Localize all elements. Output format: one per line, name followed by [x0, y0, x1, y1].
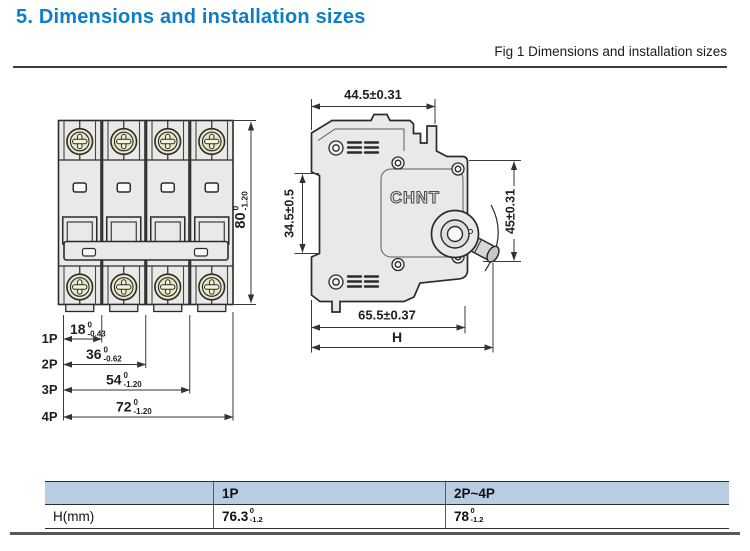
tolerance-stack: 0-1.2 — [471, 507, 484, 524]
table-header-empty — [45, 482, 213, 504]
dim-right-height: 45±0.31 — [504, 189, 518, 234]
svg-text:36: 36 — [86, 346, 102, 362]
dimension-table: 1P 2P~4P H(mm) 76.3 0-1.2 78 0-1.2 — [45, 481, 729, 529]
svg-text:72: 72 — [116, 399, 132, 415]
pole-label-3p: 3P — [42, 382, 58, 397]
dim-2p: 36 0 -0.62 — [86, 346, 122, 364]
side-view: CHNT — [312, 115, 502, 313]
table-header-1p: 1P — [213, 482, 445, 504]
front-view — [59, 121, 234, 312]
svg-text:-0.43: -0.43 — [88, 330, 107, 339]
svg-text:-1.20: -1.20 — [240, 191, 250, 211]
tolerance-stack: 0-1.2 — [250, 507, 263, 524]
pole-label-1p: 1P — [42, 331, 58, 346]
table-header-row: 1P 2P~4P — [45, 482, 729, 505]
dim-top-width: 44.5±0.31 — [344, 87, 402, 102]
dim-din-height: 34.5±0.5 — [283, 189, 297, 238]
dim-3p: 54 0 -1.20 — [106, 371, 142, 389]
table-header-2p-4p: 2P~4P — [445, 482, 729, 504]
svg-text:0: 0 — [134, 398, 139, 407]
table-row-label: H(mm) — [45, 505, 213, 528]
svg-text:-0.62: -0.62 — [104, 355, 123, 364]
pole-label-4p: 4P — [42, 409, 58, 424]
svg-text:-1.20: -1.20 — [134, 407, 153, 416]
svg-text:-1.20: -1.20 — [124, 380, 143, 389]
svg-text:0: 0 — [104, 346, 109, 355]
svg-text:0: 0 — [88, 321, 93, 330]
page-bottom-rule — [10, 532, 740, 535]
svg-text:0: 0 — [124, 371, 129, 380]
brand-logo: CHNT — [390, 189, 440, 207]
svg-text:18: 18 — [70, 321, 86, 337]
dim-4p: 72 0 -1.20 — [116, 398, 152, 416]
datasheet-page: 5. Dimensions and installation sizes Fig… — [0, 0, 750, 551]
svg-text:54: 54 — [106, 372, 122, 388]
dim-bottom-width: 65.5±0.37 — [358, 308, 416, 323]
table-data-row: H(mm) 76.3 0-1.2 78 0-1.2 — [45, 505, 729, 528]
dim-1p: 18 0 -0.43 — [70, 321, 106, 339]
pole-label-2p: 2P — [42, 357, 58, 372]
dimensions-figure: 80 0 -1.20 1P 18 0 -0.43 2P 36 0 — [0, 0, 750, 481]
table-value-2p-4p: 78 0-1.2 — [445, 505, 729, 528]
dim-h-label: H — [392, 329, 402, 345]
table-value-1p: 76.3 0-1.2 — [213, 505, 445, 528]
svg-text:80: 80 — [233, 212, 249, 228]
rotary-knob — [432, 211, 479, 258]
